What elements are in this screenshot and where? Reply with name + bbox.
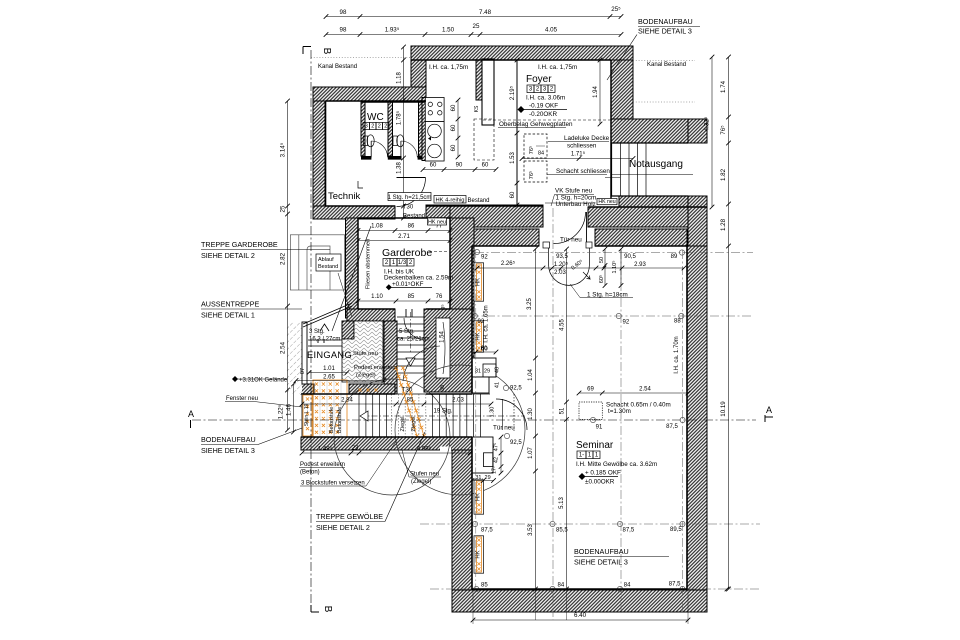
svg-text:B: B <box>321 48 332 55</box>
svg-text:1 Stg. h=21,5cm: 1 Stg. h=21,5cm <box>388 195 432 201</box>
svg-text:87,5: 87,5 <box>481 528 493 534</box>
svg-text:98: 98 <box>340 9 347 16</box>
svg-text:Betonstufe: Betonstufe <box>329 407 335 433</box>
svg-text:AUSSENTREPPE: AUSSENTREPPE <box>201 300 260 309</box>
svg-text:92,5: 92,5 <box>510 440 522 446</box>
svg-text:1.18: 1.18 <box>397 72 403 84</box>
svg-text:3 Stg.: 3 Stg. <box>309 329 325 335</box>
svg-text:1.01: 1.01 <box>323 366 335 372</box>
svg-text:31: 31 <box>475 369 481 375</box>
svg-text:Oberbelag Gehwegplatten: Oberbelag Gehwegplatten <box>499 121 573 128</box>
svg-text:87,5: 87,5 <box>669 582 681 588</box>
svg-text:1-: 1- <box>579 453 584 459</box>
svg-text:29: 29 <box>484 369 490 375</box>
svg-text:+3.31OK Gelände: +3.31OK Gelände <box>239 378 288 384</box>
svg-text:10.19: 10.19 <box>720 401 727 417</box>
svg-text:17⁵: 17⁵ <box>492 466 498 474</box>
svg-text:92,5: 92,5 <box>510 386 522 392</box>
svg-text:2: 2 <box>371 124 374 130</box>
svg-text:84: 84 <box>538 151 544 157</box>
svg-text:60⁵: 60⁵ <box>598 275 605 283</box>
svg-text:+0.01⁵OKF: +0.01⁵OKF <box>392 281 424 288</box>
svg-text:schliessen: schliessen <box>567 143 597 150</box>
svg-text:Podest erweitern: Podest erweitern <box>300 462 345 468</box>
svg-text:92: 92 <box>481 255 488 261</box>
svg-text:Bestand: Bestand <box>403 214 425 220</box>
svg-text:2.03: 2.03 <box>554 270 566 276</box>
svg-text:76⁵: 76⁵ <box>528 146 535 154</box>
svg-text:16,3 / 27cm: 16,3 / 27cm <box>309 337 340 343</box>
svg-text:5.13: 5.13 <box>559 497 565 509</box>
svg-text:48: 48 <box>495 367 501 373</box>
svg-text:1.93⁵: 1.93⁵ <box>385 27 400 34</box>
svg-text:60: 60 <box>451 124 457 131</box>
svg-text:Fenster neu: Fenster neu <box>226 396 258 402</box>
svg-text:25⁵: 25⁵ <box>611 6 621 13</box>
svg-text:6.40: 6.40 <box>574 612 587 619</box>
svg-text:60: 60 <box>451 144 457 151</box>
svg-text:SIEHE DETAIL 3: SIEHE DETAIL 3 <box>201 446 255 455</box>
svg-text:VK Stufe neu: VK Stufe neu <box>555 188 593 195</box>
svg-text:I.H. ca. 1,75m: I.H. ca. 1,75m <box>538 64 577 71</box>
svg-text:TREPPE GARDEROBE: TREPPE GARDEROBE <box>201 240 278 249</box>
svg-text:Tür neu: Tür neu <box>493 425 515 432</box>
svg-text:1.28: 1.28 <box>720 218 727 231</box>
svg-text:1.07: 1.07 <box>528 447 534 459</box>
svg-text:SIEHE DETAIL 2: SIEHE DETAIL 2 <box>316 523 370 532</box>
svg-text:1.94: 1.94 <box>593 86 599 98</box>
svg-text:Unterbau Holz: Unterbau Holz <box>556 201 596 208</box>
svg-text:I.H. ca. 3.06m: I.H. ca. 3.06m <box>526 95 565 102</box>
svg-text:HK: HK <box>476 332 482 340</box>
svg-text:5 Stg.: 5 Stg. <box>399 329 415 335</box>
svg-text:(Beton): (Beton) <box>300 470 320 476</box>
svg-text:4.55: 4.55 <box>560 319 566 331</box>
svg-text:HK: HK <box>476 550 482 558</box>
svg-text:41: 41 <box>495 382 501 388</box>
svg-text:Garderobe: Garderobe <box>382 247 432 259</box>
svg-text:84: 84 <box>558 583 565 589</box>
svg-text:EINGANG: EINGANG <box>307 350 352 360</box>
svg-text:9⁵: 9⁵ <box>440 304 447 309</box>
svg-text:3 Blockstufen versetzen: 3 Blockstufen versetzen <box>301 481 365 487</box>
svg-text:1.71⁵: 1.71⁵ <box>571 151 586 158</box>
svg-text:50: 50 <box>599 257 605 263</box>
svg-text:HK: HK <box>476 278 482 286</box>
svg-text:7.48: 7.48 <box>479 9 492 16</box>
svg-text:TREPPE GEWÖLBE: TREPPE GEWÖLBE <box>316 512 383 521</box>
svg-text:-0.20OKR: -0.20OKR <box>529 111 557 118</box>
svg-text:A: A <box>188 409 194 419</box>
svg-text:86: 86 <box>408 224 415 230</box>
svg-text:Ablauf: Ablauf <box>318 257 334 263</box>
svg-text:07: 07 <box>300 368 306 374</box>
svg-text:I.H. ca. 1.65m: I.H. ca. 1.65m <box>484 305 490 342</box>
svg-text:87,5: 87,5 <box>666 424 678 430</box>
svg-text:HK neu: HK neu <box>428 219 446 225</box>
svg-text:76: 76 <box>436 294 443 300</box>
svg-text:HK: HK <box>476 493 482 501</box>
svg-text:31, 29: 31, 29 <box>475 475 490 481</box>
svg-text:25: 25 <box>280 205 287 212</box>
svg-text:Betonstufe: Betonstufe <box>337 407 343 433</box>
svg-text:38: 38 <box>440 385 446 391</box>
svg-text:1.38: 1.38 <box>397 162 403 174</box>
svg-text:Tür neu: Tür neu <box>560 237 582 244</box>
svg-text:3.53: 3.53 <box>528 524 534 536</box>
svg-text:Ziegel: Ziegel <box>400 417 406 432</box>
svg-text:2.71: 2.71 <box>398 234 410 240</box>
svg-text:76⁵: 76⁵ <box>720 125 727 135</box>
svg-text:±0.00OKR: ±0.00OKR <box>585 479 615 486</box>
svg-text:SIEHE DETAIL 1: SIEHE DETAIL 1 <box>201 311 255 320</box>
svg-text:23: 23 <box>352 446 359 452</box>
svg-text:1.82: 1.82 <box>720 168 727 181</box>
svg-text:Notausgang: Notausgang <box>629 159 683 170</box>
svg-text:2: 2 <box>384 124 387 130</box>
svg-text:85,5: 85,5 <box>556 528 568 534</box>
svg-text:B: B <box>322 606 333 613</box>
svg-text:2.26⁵: 2.26⁵ <box>501 260 516 267</box>
svg-text:Stufe neu: Stufe neu <box>353 351 378 357</box>
svg-text:2.03: 2.03 <box>452 398 464 404</box>
svg-text:+ 0.185 OKF: + 0.185 OKF <box>585 470 621 477</box>
svg-text:1.54: 1.54 <box>440 331 446 343</box>
svg-text:92: 92 <box>623 320 630 326</box>
svg-text:85: 85 <box>407 398 414 404</box>
svg-text:2: 2 <box>378 124 381 130</box>
svg-text:85: 85 <box>408 294 415 300</box>
svg-text:SIEHE DETAIL 2: SIEHE DETAIL 2 <box>201 251 255 260</box>
svg-text:BODENAUFBAU: BODENAUFBAU <box>201 435 256 444</box>
svg-text:60: 60 <box>481 347 488 353</box>
svg-text:85: 85 <box>481 583 488 589</box>
svg-text:4.05: 4.05 <box>545 27 558 34</box>
svg-text:91: 91 <box>596 425 603 431</box>
svg-text:89: 89 <box>671 254 678 260</box>
svg-text:Kanal Bestand: Kanal Bestand <box>318 64 357 70</box>
svg-text:84: 84 <box>624 583 631 589</box>
svg-text:SIEHE DETAIL 3: SIEHE DETAIL 3 <box>574 558 628 567</box>
svg-text:89,5: 89,5 <box>670 527 682 533</box>
svg-text:2.65: 2.65 <box>323 375 335 381</box>
svg-text:I.H. Mitte Gewölbe ca. 3.62m: I.H. Mitte Gewölbe ca. 3.62m <box>576 461 657 468</box>
svg-text:76⁵: 76⁵ <box>528 171 535 179</box>
svg-text:1.78⁵: 1.78⁵ <box>396 110 403 125</box>
svg-text:1/3: 1/3 <box>398 260 407 266</box>
svg-text:BODENAUFBAU: BODENAUFBAU <box>574 547 629 556</box>
svg-text:60: 60 <box>451 104 457 111</box>
svg-text:47⁵: 47⁵ <box>493 443 500 451</box>
svg-text:51: 51 <box>560 407 566 414</box>
svg-text:Bestand: Bestand <box>318 264 338 270</box>
svg-text:1.48⁵: 1.48⁵ <box>318 446 333 453</box>
svg-text:KS: KS <box>474 105 480 112</box>
svg-text:1.30: 1.30 <box>528 408 534 420</box>
svg-text:ca. 25/21cm: ca. 25/21cm <box>397 337 430 343</box>
svg-text:1.30: 1.30 <box>490 407 496 418</box>
svg-text:3.25: 3.25 <box>527 298 533 310</box>
svg-text:60: 60 <box>430 163 437 169</box>
svg-text:2.84: 2.84 <box>341 398 353 404</box>
svg-text:92: 92 <box>478 319 485 325</box>
svg-text:4.32⁵: 4.32⁵ <box>704 116 711 131</box>
svg-text:(Ziegel): (Ziegel) <box>411 479 431 485</box>
svg-text:2.54: 2.54 <box>280 341 287 354</box>
svg-text:HK 4-reihig: HK 4-reihig <box>436 197 465 203</box>
svg-text:90,5: 90,5 <box>624 254 636 260</box>
svg-text:69: 69 <box>587 387 594 393</box>
svg-text:88: 88 <box>674 319 681 325</box>
svg-text:3.14⁵: 3.14⁵ <box>280 142 287 157</box>
svg-text:t=1.30m: t=1.30m <box>608 408 631 415</box>
svg-text:3: 3 <box>365 124 368 130</box>
svg-text:Stein L.19: Stein L.19 <box>304 404 310 427</box>
svg-text:WC: WC <box>367 112 384 123</box>
svg-text:90: 90 <box>456 163 463 169</box>
svg-text:-0.19 OKF: -0.19 OKF <box>529 103 558 110</box>
svg-text:3.99⁵: 3.99⁵ <box>417 446 432 453</box>
svg-text:25: 25 <box>473 23 480 30</box>
svg-text:2.93: 2.93 <box>634 262 646 268</box>
svg-text:1.04: 1.04 <box>528 369 534 381</box>
svg-text:1.10: 1.10 <box>371 294 383 300</box>
svg-text:98: 98 <box>340 27 347 34</box>
svg-text:19 Stg.: 19 Stg. <box>433 409 452 415</box>
svg-text:I.H. ca. 1.70m: I.H. ca. 1.70m <box>674 336 680 373</box>
svg-text:T30: T30 <box>403 205 414 211</box>
svg-text:Kanal Bestand: Kanal Bestand <box>647 62 686 68</box>
svg-text:Fliesen abstemmen: Fliesen abstemmen <box>366 239 372 290</box>
svg-text:Foyer: Foyer <box>526 74 552 85</box>
svg-text:BODENAUFBAU: BODENAUFBAU <box>638 17 693 26</box>
svg-text:HK neu: HK neu <box>598 199 615 205</box>
svg-text:Stufen neu: Stufen neu <box>410 472 439 478</box>
svg-text:2.82: 2.82 <box>280 252 287 265</box>
svg-text:T30: T30 <box>402 387 413 394</box>
svg-text:1.22⁵: 1.22⁵ <box>278 404 285 419</box>
svg-text:Podest erweitern: Podest erweitern <box>354 365 398 371</box>
svg-text:SIEHE DETAIL 3: SIEHE DETAIL 3 <box>638 27 692 36</box>
svg-text:42: 42 <box>494 457 500 463</box>
svg-text:1.08: 1.08 <box>371 224 383 230</box>
svg-text:Ladeluke Decke: Ladeluke Decke <box>564 135 610 142</box>
svg-text:Bestand: Bestand <box>468 198 490 204</box>
svg-text:2.19⁵: 2.19⁵ <box>509 85 516 100</box>
svg-text:1.50: 1.50 <box>442 27 455 34</box>
svg-text:2.54: 2.54 <box>639 387 651 393</box>
svg-text:Seminar: Seminar <box>576 440 614 451</box>
svg-text:60: 60 <box>482 163 489 169</box>
svg-text:1.53: 1.53 <box>510 152 516 164</box>
svg-text:(Ziegel): (Ziegel) <box>356 373 376 379</box>
svg-text:A: A <box>766 405 772 415</box>
svg-text:1.10⁵: 1.10⁵ <box>611 261 618 274</box>
svg-text:60: 60 <box>510 191 516 198</box>
svg-text:Technik: Technik <box>328 191 360 202</box>
svg-text:1.74: 1.74 <box>720 80 727 93</box>
svg-text:Ziegel: Ziegel <box>411 417 417 432</box>
svg-text:I.H. ca. 1,75m: I.H. ca. 1,75m <box>429 64 468 71</box>
svg-text:87,5: 87,5 <box>623 528 635 534</box>
svg-text:Schacht schliessen: Schacht schliessen <box>556 168 610 175</box>
